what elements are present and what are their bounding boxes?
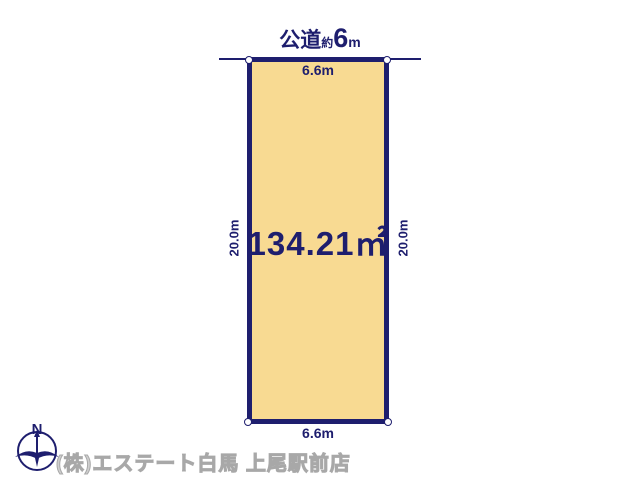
land-parcel: 134.21㎡ bbox=[247, 57, 389, 424]
bird-tail bbox=[35, 458, 39, 467]
corner-marker-top-left bbox=[245, 56, 253, 64]
parcel-area-label: 134.21㎡ bbox=[248, 217, 389, 265]
dimension-top: 6.6m bbox=[247, 62, 389, 78]
road-width-value: 6 bbox=[333, 23, 348, 53]
dimension-bottom: 6.6m bbox=[247, 425, 389, 441]
dimension-left: 20.0m bbox=[227, 220, 242, 257]
corner-marker-bottom-right bbox=[384, 418, 392, 426]
compass-north-label: N bbox=[32, 421, 43, 438]
road-label: 公道約6m bbox=[0, 24, 640, 57]
corner-marker-bottom-left bbox=[244, 418, 252, 426]
land-plot-diagram: 公道約6m 134.21㎡ 6.6m 6.6m 20.0m 20.0m N (株… bbox=[0, 0, 640, 480]
corner-marker-top-right bbox=[383, 56, 391, 64]
road-approx-text: 約 bbox=[321, 36, 333, 50]
road-width-unit: m bbox=[348, 34, 360, 50]
road-name-text: 公道 bbox=[279, 29, 321, 52]
company-watermark: (株)エステート白馬 上尾駅前店 bbox=[56, 447, 351, 476]
dimension-right: 20.0m bbox=[396, 220, 411, 257]
